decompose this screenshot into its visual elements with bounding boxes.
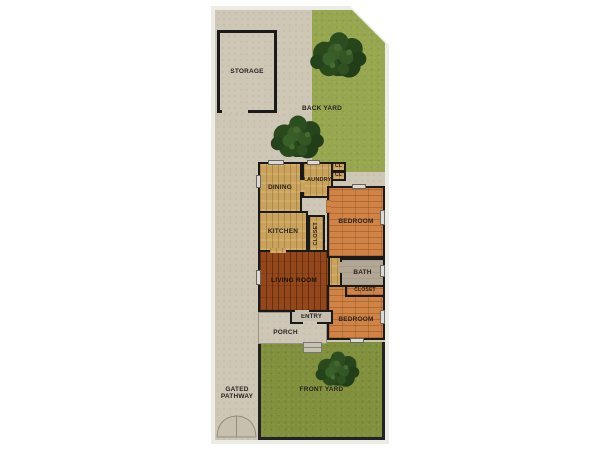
door-opening	[303, 321, 317, 325]
window-icon	[256, 270, 261, 285]
kitchen-label: KITCHEN	[268, 228, 298, 235]
room-hall-closet: CLOSET	[308, 215, 325, 252]
window-icon	[380, 210, 385, 225]
door-opening	[270, 248, 286, 253]
tree-icon	[303, 20, 375, 92]
door-opening	[326, 200, 331, 213]
floorplan-canvas: BACK YARD STORAGE DINING LAUNDRY CL CL	[0, 0, 600, 450]
closet-small-1-label: CL	[335, 164, 342, 170]
room-living: LIVING ROOM	[258, 250, 330, 312]
door-opening	[300, 180, 305, 192]
bath-label: BATH	[353, 269, 371, 276]
room-bath: BATH	[340, 258, 385, 287]
tree-icon	[263, 104, 333, 172]
room-storage: STORAGE	[217, 30, 277, 113]
living-room-label: LIVING ROOM	[271, 277, 317, 284]
dining-label: DINING	[268, 184, 292, 191]
property-outline: BACK YARD STORAGE DINING LAUNDRY CL CL	[211, 6, 389, 444]
bedroom-1-label: BEDROOM	[338, 218, 373, 225]
storage-door-opening	[222, 110, 248, 114]
laundry-label: LAUNDRY	[303, 177, 331, 183]
window-icon	[380, 310, 385, 324]
hall-closet-label: CLOSET	[313, 222, 319, 246]
property-lot: BACK YARD STORAGE DINING LAUNDRY CL CL	[215, 10, 385, 440]
entry-label: ENTRY	[301, 314, 322, 321]
window-icon	[380, 265, 385, 277]
gate-arcs-icon	[215, 408, 258, 439]
tree-icon	[310, 342, 366, 398]
porch-label: PORCH	[259, 329, 312, 336]
window-icon	[256, 175, 261, 188]
gated-pathway-line2: PATHWAY	[217, 393, 257, 400]
room-closet-small-2: CL	[331, 171, 346, 181]
closet-small-2-label: CL	[335, 173, 342, 179]
room-bedroom-closet: CLOSET	[345, 285, 385, 297]
gated-pathway-label: GATED PATHWAY	[217, 386, 257, 401]
bedroom-closet-label: CLOSET	[354, 288, 375, 294]
window-icon	[352, 184, 366, 189]
door-opening	[339, 262, 344, 273]
bedroom-2-label: BEDROOM	[338, 316, 373, 323]
gated-pathway-line1: GATED	[217, 386, 257, 393]
room-kitchen: KITCHEN	[258, 211, 308, 252]
storage-label: STORAGE	[230, 68, 263, 75]
room-bedroom-1: BEDROOM	[327, 186, 385, 258]
door-opening	[295, 310, 309, 314]
